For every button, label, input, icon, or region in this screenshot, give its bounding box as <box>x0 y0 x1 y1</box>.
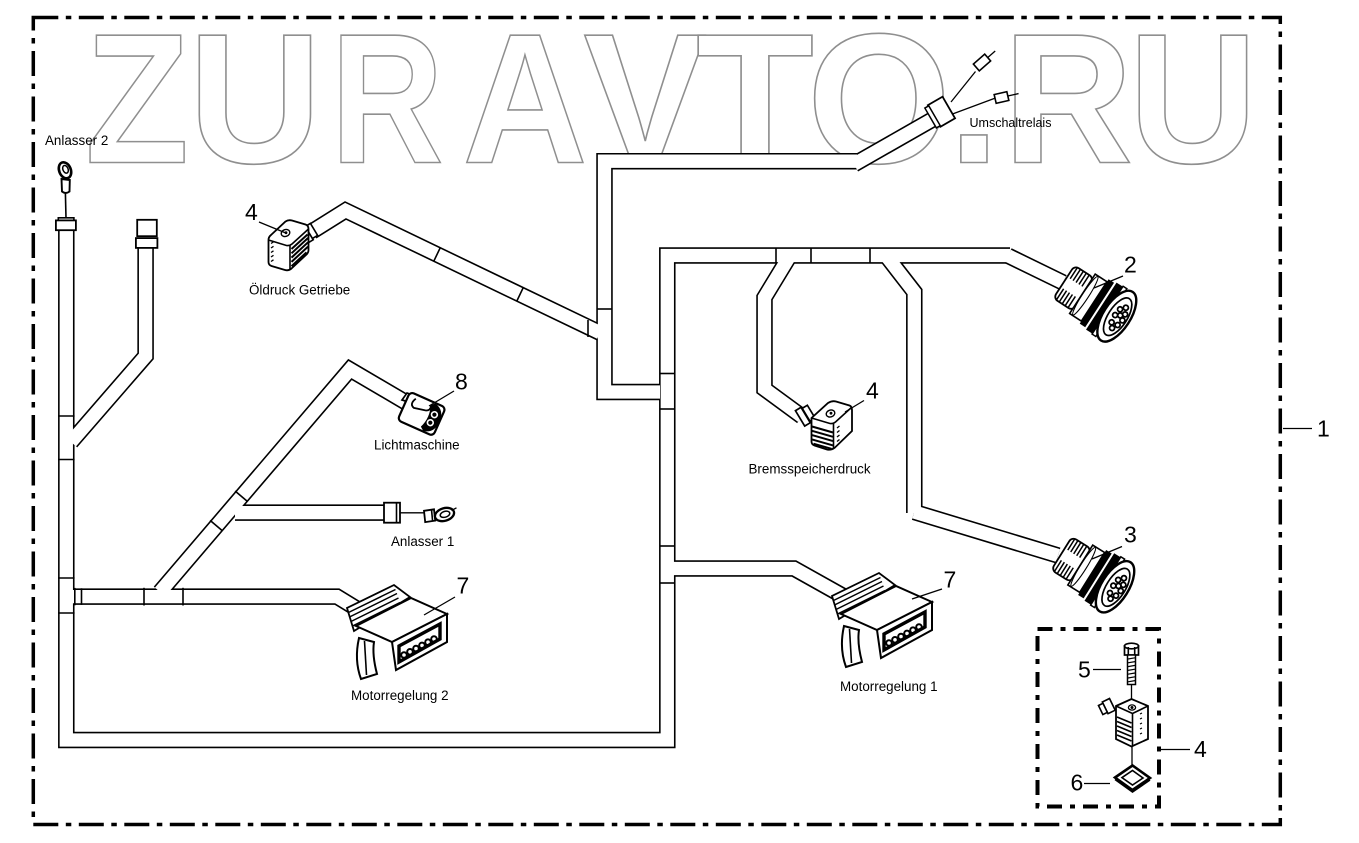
svg-text:Z: Z <box>85 0 189 203</box>
svg-text:1: 1 <box>1317 416 1330 442</box>
svg-text:R: R <box>1003 0 1133 203</box>
svg-text:.: . <box>948 0 999 203</box>
svg-text:Umschaltrelais: Umschaltrelais <box>970 116 1052 130</box>
svg-text:U: U <box>188 0 322 203</box>
svg-text:7: 7 <box>457 573 470 599</box>
svg-text:R: R <box>331 0 444 203</box>
svg-text:O: O <box>807 0 951 203</box>
svg-text:4: 4 <box>1194 736 1207 762</box>
svg-text:Lichtmaschine: Lichtmaschine <box>374 438 460 453</box>
svg-text:7: 7 <box>944 567 957 593</box>
svg-text:2: 2 <box>1124 252 1137 278</box>
svg-text:Anlasser 2: Anlasser 2 <box>45 133 108 148</box>
svg-text:8: 8 <box>455 369 468 395</box>
svg-text:5: 5 <box>1078 657 1091 683</box>
svg-text:3: 3 <box>1124 522 1137 548</box>
svg-text:A: A <box>463 0 588 203</box>
svg-text:Motorregelung 1: Motorregelung 1 <box>840 679 938 694</box>
svg-text:Öldruck Getriebe: Öldruck Getriebe <box>249 283 350 298</box>
svg-text:4: 4 <box>866 378 879 404</box>
svg-text:T: T <box>696 0 814 203</box>
svg-text:U: U <box>1129 0 1258 203</box>
svg-text:Bremsspeicherdruck: Bremsspeicherdruck <box>749 462 871 477</box>
svg-text:Motorregelung 2: Motorregelung 2 <box>351 688 449 703</box>
svg-text:Anlasser 1: Anlasser 1 <box>391 534 454 549</box>
svg-text:4: 4 <box>245 199 258 225</box>
svg-text:6: 6 <box>1071 770 1084 796</box>
